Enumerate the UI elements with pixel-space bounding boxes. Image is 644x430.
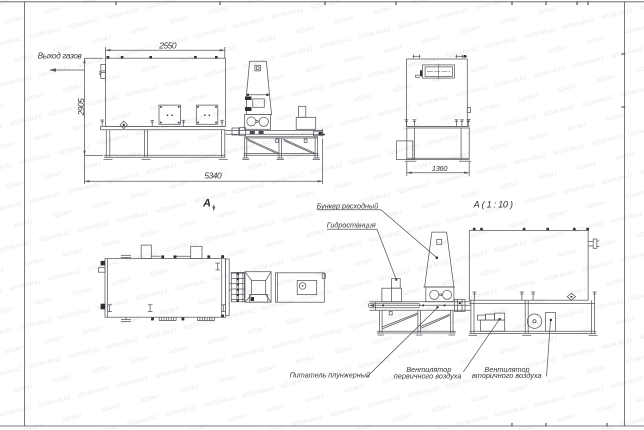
svg-text:Питатель плунжерный: Питатель плунжерный <box>290 371 370 380</box>
svg-text:2905: 2905 <box>76 98 86 117</box>
svg-text:1360: 1360 <box>432 164 448 173</box>
svg-text:Выход газов: Выход газов <box>38 52 83 61</box>
svg-text:А: А <box>202 198 211 210</box>
svg-text:5340: 5340 <box>204 171 222 181</box>
svg-text:Бункер расходный: Бункер расходный <box>317 201 379 210</box>
svg-text:Гидростанция: Гидростанция <box>327 221 376 230</box>
svg-text:первичного воздуха: первичного воздуха <box>394 371 462 380</box>
svg-text:А ( 1 : 10 ): А ( 1 : 10 ) <box>473 200 513 210</box>
svg-text:2550: 2550 <box>158 40 177 50</box>
svg-text:вторичного воздуха: вторичного воздуха <box>472 371 542 380</box>
